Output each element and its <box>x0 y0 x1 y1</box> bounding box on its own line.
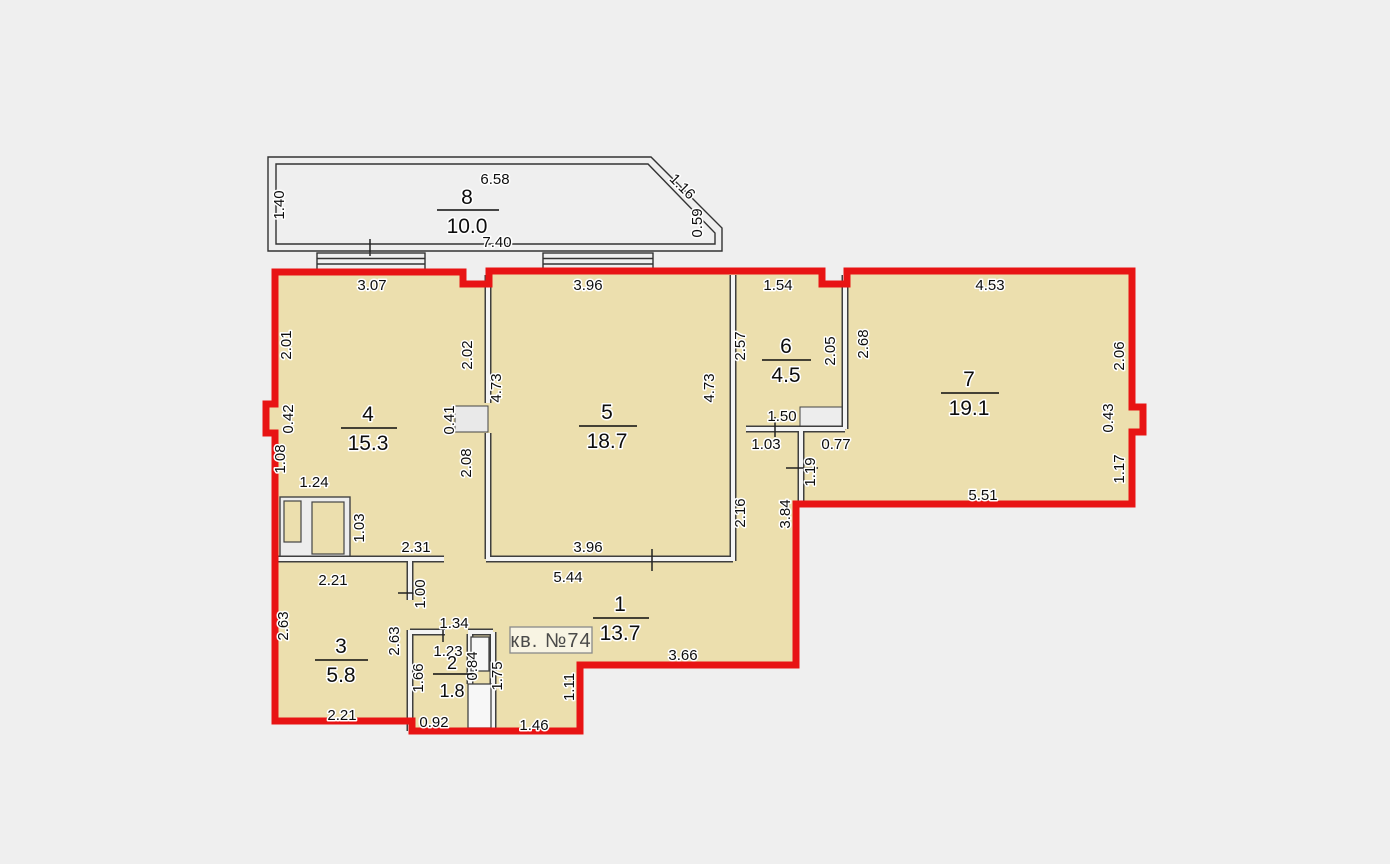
apartment-number-label: кв. №74 <box>510 630 591 652</box>
dim-room6-below-right: 0.77 <box>821 436 850 453</box>
dim-room4-right-upper: 2.02 <box>459 340 476 369</box>
door-niche-room4 <box>455 406 488 432</box>
dim-balcony-right: 0.59 <box>689 208 706 237</box>
dim-room2-left: 1.66 <box>410 663 427 692</box>
dim-room4-left-upper: 2.01 <box>278 330 295 359</box>
dim-room4-left-niche: 0.42 <box>280 404 297 433</box>
room-2-number: 2 <box>447 653 457 673</box>
dim-room5-bottom: 3.96 <box>573 539 602 556</box>
dim-room1-entry-width: 1.46 <box>519 717 548 734</box>
dim-room3-left: 2.63 <box>275 611 292 640</box>
dim-room5-right: 4.73 <box>701 373 718 402</box>
room-7-area: 19.1 <box>949 397 990 420</box>
dim-room5-top: 3.96 <box>573 277 602 294</box>
dim-room4-closet: 1.24 <box>299 474 328 491</box>
floor-plan-page: 6.58 7.40 3.07 3.96 1.54 4.53 1.24 2.31 … <box>0 0 1390 864</box>
dim-room6-door: 1.19 <box>802 457 819 486</box>
dim-room2-bottom: 0.92 <box>419 714 448 731</box>
dim-room4-door: 0.41 <box>441 405 458 434</box>
dim-room4-closet-side: 1.03 <box>351 513 368 542</box>
dim-balcony-left: 1.40 <box>271 190 288 219</box>
dim-room7-right-lower: 1.17 <box>1111 454 1128 483</box>
dim-room2-top: 1.34 <box>439 615 468 632</box>
dim-room7-right-niche: 0.43 <box>1100 403 1117 432</box>
dim-room1-passage: 1.00 <box>412 579 429 608</box>
dim-room1-entry-step: 1.11 <box>561 673 578 701</box>
dim-room7-left: 2.68 <box>855 329 872 358</box>
room-8-number: 8 <box>461 186 473 209</box>
dim-room4-right-lower: 2.08 <box>458 448 475 477</box>
dim-room1-right: 3.84 <box>777 499 794 528</box>
dim-room5-left: 4.73 <box>488 373 505 402</box>
room-6-number: 6 <box>780 335 792 358</box>
room-5-area: 18.7 <box>587 430 628 453</box>
room-1-area: 13.7 <box>600 622 641 645</box>
room-5-number: 5 <box>601 401 613 424</box>
closet-shelf-large <box>312 502 344 554</box>
dim-room1-vert: 2.16 <box>732 498 749 527</box>
shaft-lower <box>468 684 491 728</box>
dim-room6-right: 2.05 <box>822 336 839 365</box>
room-4-number: 4 <box>362 403 374 426</box>
room-2-area: 1.8 <box>439 681 464 701</box>
room-3-number: 3 <box>335 635 347 658</box>
dim-room6-bottom: 1.50 <box>767 408 796 425</box>
dim-room7-top: 4.53 <box>975 277 1004 294</box>
apartment-number-stamp: кв. №74 <box>510 627 592 653</box>
room-1-number: 1 <box>614 593 626 616</box>
dim-room1-entry-height: 1.75 <box>489 661 506 690</box>
dim-room3-top: 2.21 <box>318 572 347 589</box>
dim-room2-shaft: 0.84 <box>464 651 481 680</box>
room-8-area: 10.0 <box>447 215 488 238</box>
dim-room7-right-upper: 2.06 <box>1111 341 1128 370</box>
dim-room1-bottom: 3.66 <box>668 647 697 664</box>
dim-room4-bottom: 2.31 <box>401 539 430 556</box>
closet-shelf-small <box>284 501 301 542</box>
dim-room4-left-lower: 1.08 <box>272 444 289 473</box>
dim-room6-below-left: 1.03 <box>751 436 780 453</box>
closet-room4 <box>280 497 350 558</box>
dim-room6-left: 2.57 <box>732 331 749 360</box>
dim-balcony-top: 6.58 <box>480 171 509 188</box>
room-3-area: 5.8 <box>326 664 355 687</box>
room-4-area: 15.3 <box>348 432 389 455</box>
dim-room3-right: 2.63 <box>386 626 403 655</box>
dim-room4-top: 3.07 <box>357 277 386 294</box>
dim-room1-top: 5.44 <box>553 569 582 586</box>
dim-room7-bottom: 5.51 <box>968 487 997 504</box>
room-7-number: 7 <box>963 368 975 391</box>
dim-room6-top: 1.54 <box>763 277 792 294</box>
dim-room3-bottom: 2.21 <box>327 707 356 724</box>
room-6-area: 4.5 <box>771 364 800 387</box>
floor-plan: 6.58 7.40 3.07 3.96 1.54 4.53 1.24 2.31 … <box>0 0 1390 864</box>
